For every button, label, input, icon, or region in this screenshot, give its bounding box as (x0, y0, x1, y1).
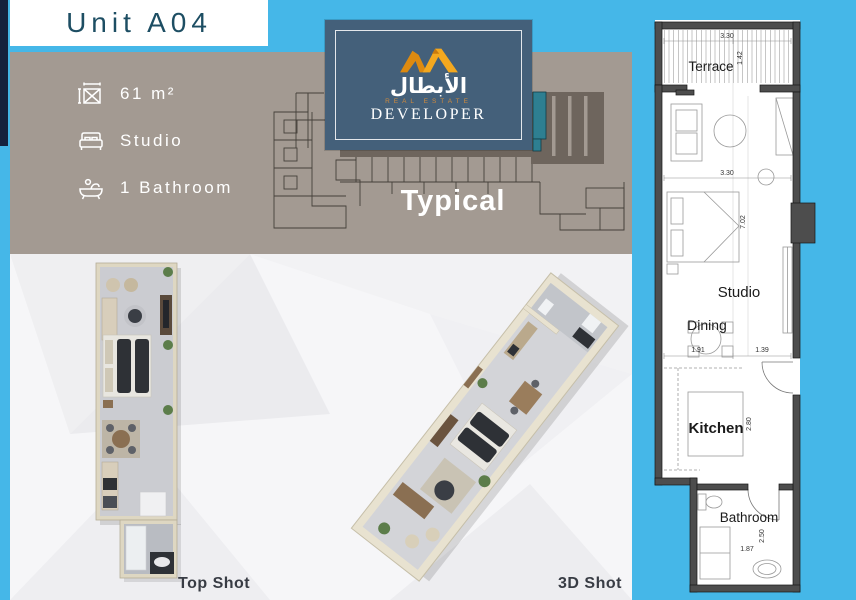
left-edge-strip (0, 0, 8, 146)
logo-tagline: REAL ESTATE (385, 98, 472, 105)
area-icon (76, 79, 106, 109)
spec-type: Studio (76, 125, 233, 157)
dining-right-dim: 1.39 (755, 347, 769, 354)
spec-area: 61 m² (76, 78, 233, 110)
kitchen-label: Kitchen (688, 420, 743, 437)
bathroom-label: Bathroom (720, 510, 779, 525)
dining-left-dim: 1.91 (691, 347, 705, 354)
developer-logo: الأبطال REAL ESTATE DEVELOPER (325, 20, 532, 150)
spec-area-label: 61 m² (120, 84, 176, 104)
spec-bath: 1 Bathroom (76, 172, 233, 204)
page-title: Unit A04 (66, 7, 212, 39)
threed-shot-render (328, 262, 634, 592)
logo-frame: الأبطال REAL ESTATE DEVELOPER (335, 30, 522, 140)
bath-icon (76, 173, 106, 203)
info-panel: 61 m² Studio (10, 52, 632, 254)
top-shot-label: Top Shot (178, 575, 250, 593)
unit-spec-list: 61 m² Studio (76, 78, 233, 204)
key-plan-caption: Typical (388, 185, 518, 218)
studio-width-dim: 3.30 (720, 170, 734, 177)
guide-lines (733, 30, 748, 356)
spec-bath-label: 1 Bathroom (120, 178, 233, 198)
logo-developer-name: DEVELOPER (371, 106, 487, 124)
walls (655, 22, 815, 592)
dining-label: Dining (687, 317, 727, 333)
room-labels: Terrace Studio Dining Kitchen Bathroom (687, 59, 778, 525)
brochure-page: Unit A04 (0, 0, 856, 600)
logo-arabic-name: الأبطال (390, 75, 467, 97)
terrace-depth-dim: 1.42 (737, 51, 744, 65)
render-area: Top Shot 3D Shot (10, 254, 632, 600)
unit-a04-highlight (533, 92, 546, 139)
unit-title-box: Unit A04 (10, 0, 268, 46)
top-shot-render (80, 256, 186, 590)
bed-icon (76, 126, 106, 156)
bathroom-width-dim: 1.87 (740, 546, 754, 553)
threed-shot-label: 3D Shot (558, 575, 622, 593)
floorplan-2d: Terrace Studio Dining Kitchen Bathroom 3… (640, 12, 830, 598)
studio-label: Studio (718, 284, 761, 301)
studio-depth-dim: 7.02 (740, 215, 747, 229)
kitchen-depth-dim: 2.80 (746, 417, 753, 431)
spec-type-label: Studio (120, 131, 183, 151)
terrace-width-dim: 3.30 (720, 33, 734, 40)
mountain-logo-icon (398, 46, 460, 74)
terrace-label: Terrace (688, 59, 733, 74)
bathroom-depth-dim: 2.50 (759, 529, 766, 543)
